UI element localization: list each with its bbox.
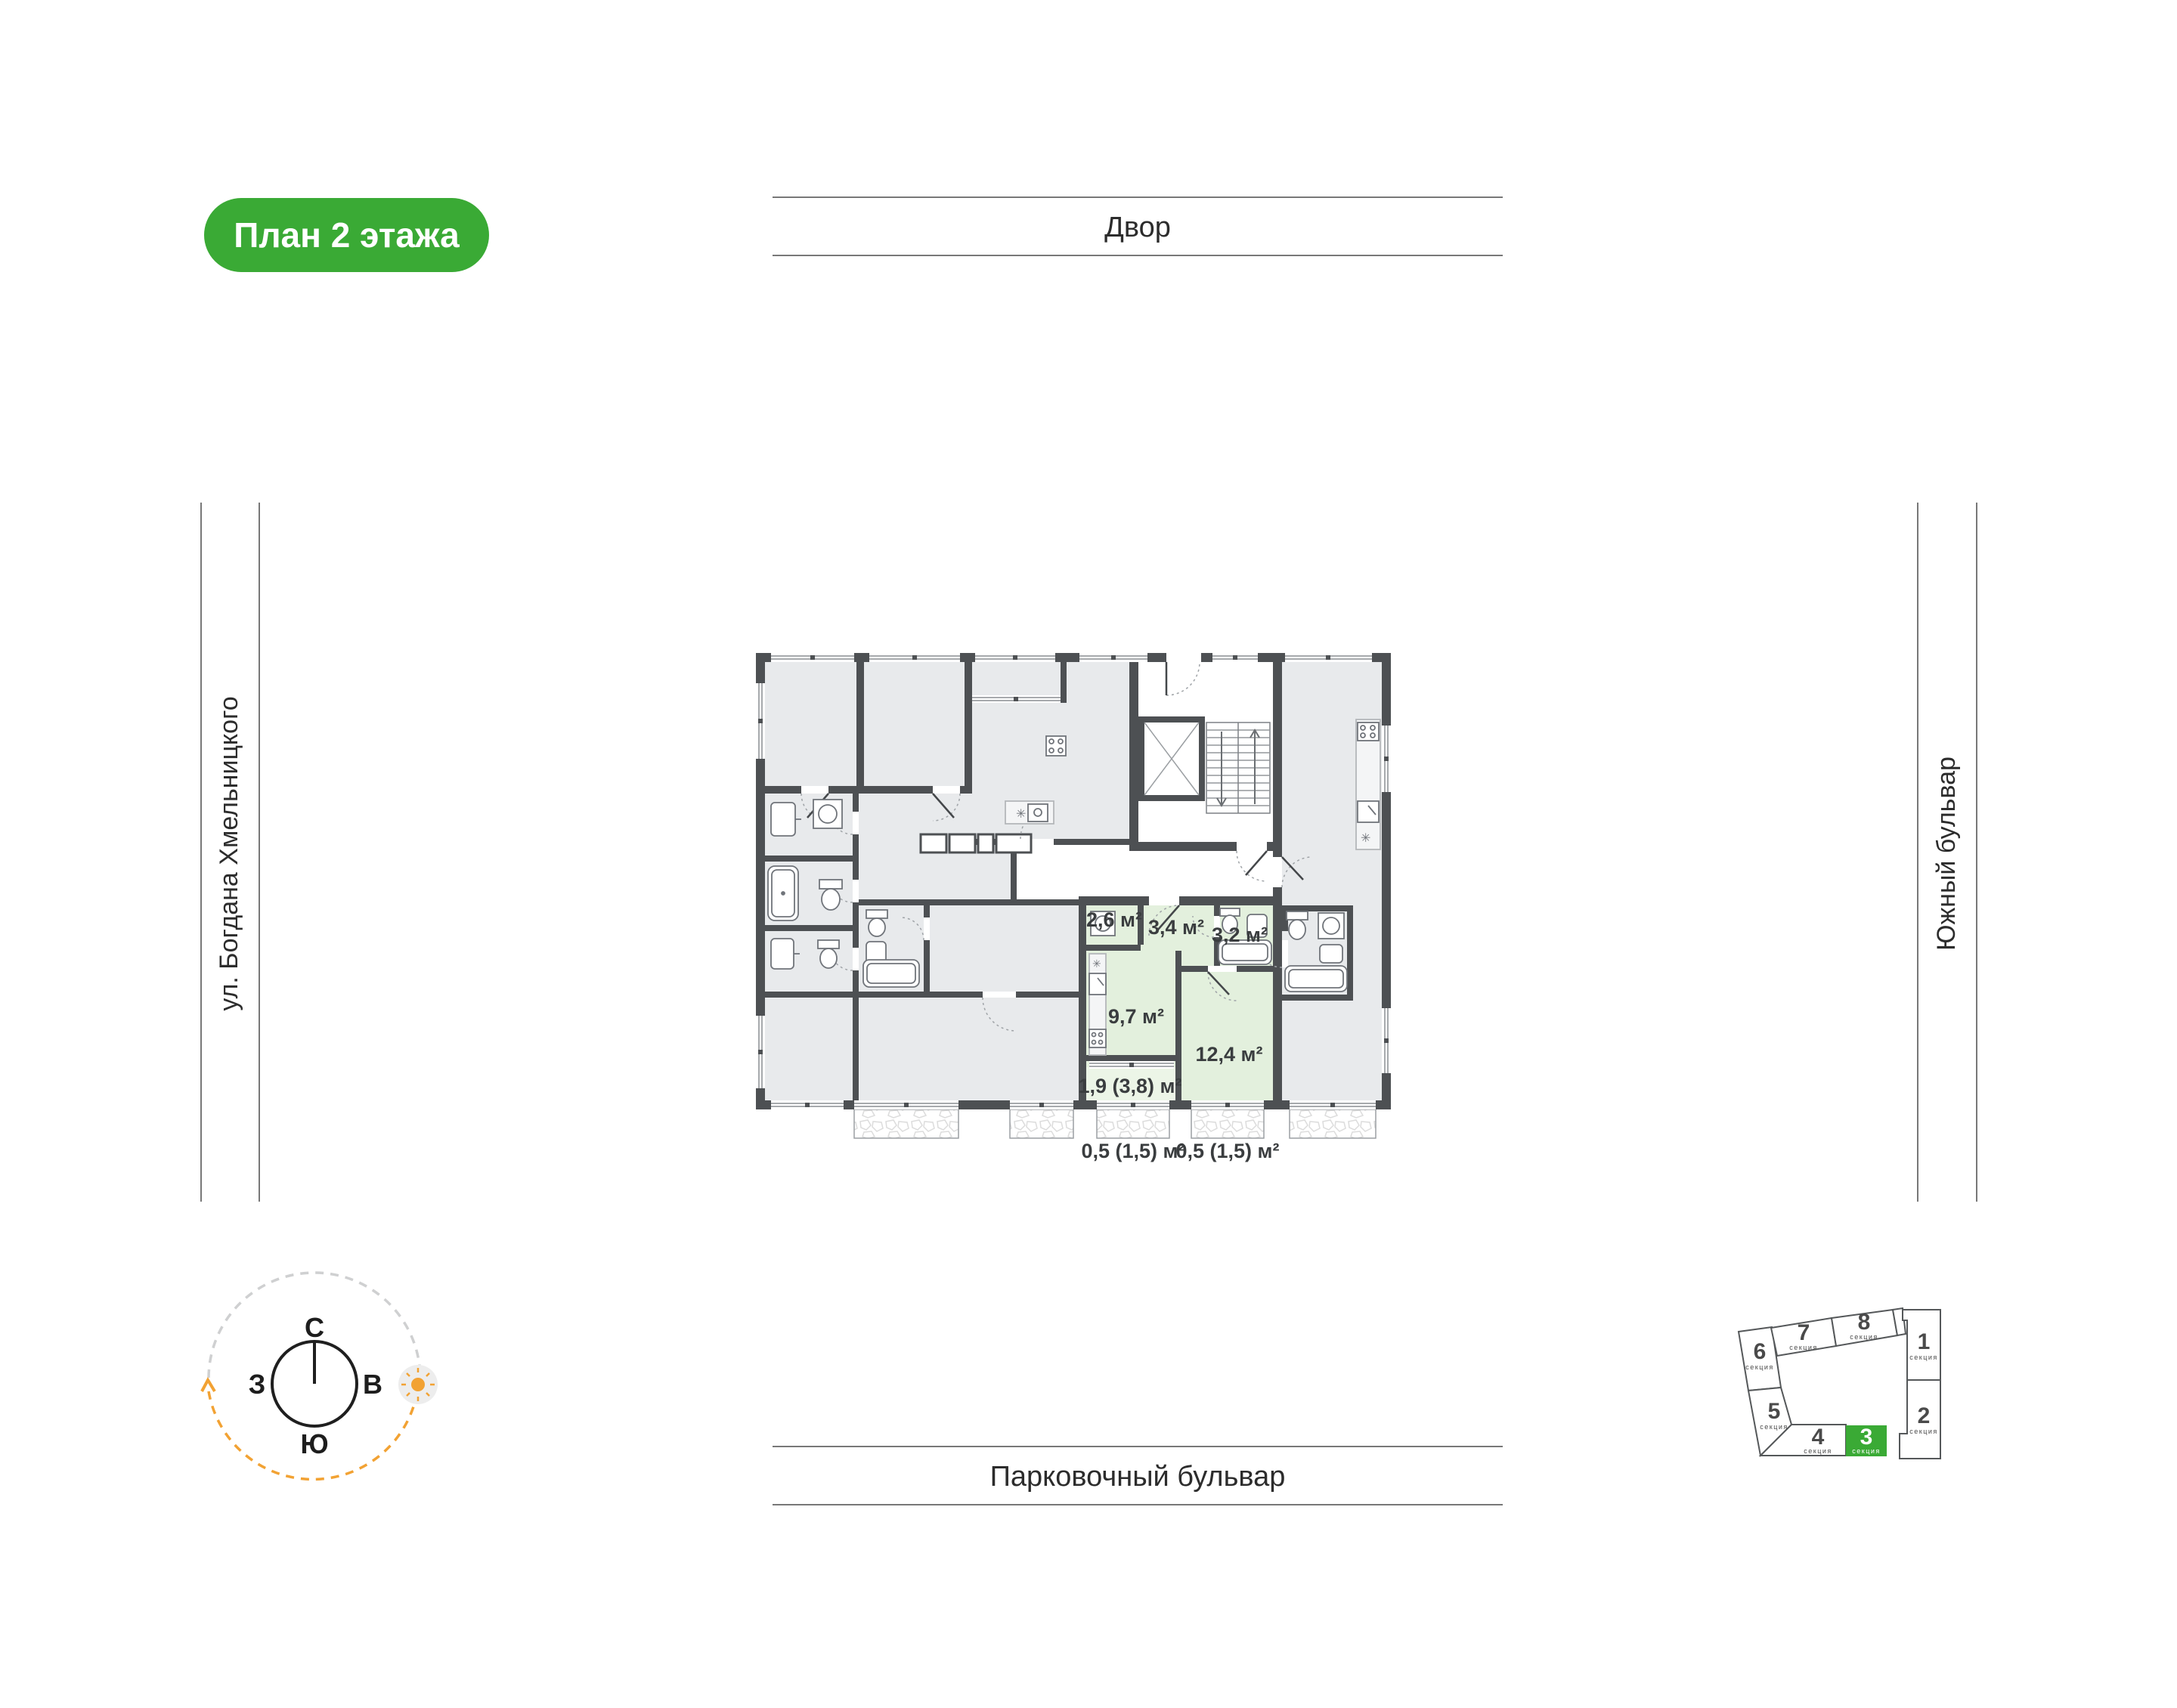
parking-label: Парковочный бульвар (773, 1461, 1503, 1493)
sink-icon (771, 803, 795, 836)
balcony-label-left: 0,5 (1,5) м² (1081, 1140, 1184, 1162)
minimap-num-4: 4 (1812, 1425, 1825, 1450)
parking-top-line (773, 1446, 1503, 1447)
right-street-inner-line (1917, 503, 1918, 1202)
minimap-num-8: 8 (1858, 1310, 1871, 1335)
minimap-num-6: 6 (1754, 1339, 1767, 1364)
balcony (1010, 1109, 1073, 1138)
compass-north-label: С (305, 1312, 324, 1343)
minimap-num-2: 2 (1918, 1403, 1931, 1428)
balcony (1191, 1109, 1264, 1138)
area-label-34: 3,4 м² (1148, 916, 1204, 939)
corridor-area (1017, 845, 1273, 899)
minimap-label-2: секция (1909, 1428, 1938, 1435)
sun-path-arrow-icon (202, 1380, 215, 1391)
area-label-32: 3,2 м² (1212, 924, 1268, 946)
floor-badge-label: План 2 этажа (234, 215, 459, 255)
toilet-icon (1287, 911, 1308, 939)
right-street-label: Южный бульвар (1932, 504, 1962, 1203)
floor-badge: План 2 этажа (204, 198, 489, 272)
area-label-loggia: 1,9 (3,8) м² (1078, 1075, 1181, 1097)
area-label-97: 9,7 м² (1108, 1005, 1164, 1028)
yard-top-line (773, 196, 1503, 198)
left-street-label: ул. Богдана Хмельницкого (215, 504, 244, 1203)
balcony (1290, 1109, 1376, 1138)
minimap-label-6: секция (1745, 1363, 1774, 1371)
yard-label: Двор (773, 212, 1503, 244)
balcony-label-right: 0,5 (1,5) м² (1175, 1140, 1279, 1162)
sink-icon (771, 939, 794, 969)
left-street-inner-line (259, 503, 260, 1202)
minimap-label-5: секция (1760, 1423, 1788, 1431)
corridor-wardrobes (921, 834, 1031, 852)
elevator (1138, 716, 1205, 801)
kitchen-sink-icon (1358, 801, 1379, 822)
minimap-label-3: секция (1852, 1447, 1881, 1455)
minimap-label-7: секция (1789, 1344, 1818, 1351)
minimap-num-5: 5 (1768, 1399, 1781, 1424)
left-street-outer-line (200, 503, 202, 1202)
compass-south-label: Ю (300, 1428, 328, 1459)
toilet-icon (866, 910, 887, 936)
minimap-num-1: 1 (1918, 1329, 1931, 1354)
minimap-num-3: 3 (1860, 1425, 1873, 1450)
minimap-num-7: 7 (1798, 1320, 1810, 1345)
minimap-label-4: секция (1804, 1447, 1832, 1455)
area-label-26: 2,6 м² (1086, 908, 1142, 931)
svg-text:✳: ✳ (1361, 832, 1370, 845)
toilet-icon (818, 940, 839, 968)
sun-icon (398, 1365, 438, 1404)
minimap-label-8: секция (1850, 1333, 1878, 1341)
sink-icon (1320, 945, 1342, 963)
stove-icon (1089, 1029, 1106, 1047)
compass-west-label: З (249, 1369, 266, 1400)
minimap-label-1: секция (1909, 1354, 1938, 1361)
compass-east-label: В (363, 1369, 382, 1400)
yard-bottom-line (773, 255, 1503, 256)
kitchen-sink-icon (1089, 973, 1106, 995)
balconies (854, 1109, 1376, 1138)
parking-bottom-line (773, 1504, 1503, 1505)
svg-text:✳: ✳ (1016, 808, 1026, 821)
compass: С Ю З В (186, 1257, 443, 1514)
balcony (854, 1109, 958, 1138)
section-minimap: 1 секция 2 секция 3 секция 4 секция 5 се… (1727, 1304, 1980, 1466)
balcony (1097, 1109, 1169, 1138)
area-label-124: 12,4 м² (1195, 1043, 1262, 1066)
stove-icon (1358, 722, 1379, 741)
stove-icon (1046, 736, 1066, 756)
floor-plan: ✳ ✳ ✳ 2,6 м² 3,4 м² 3,2 м² 9,7 м² 12,4 м… (756, 653, 1421, 1182)
right-street-outer-line (1976, 503, 1977, 1202)
svg-text:✳: ✳ (1092, 958, 1101, 970)
toilet-icon (819, 880, 842, 910)
